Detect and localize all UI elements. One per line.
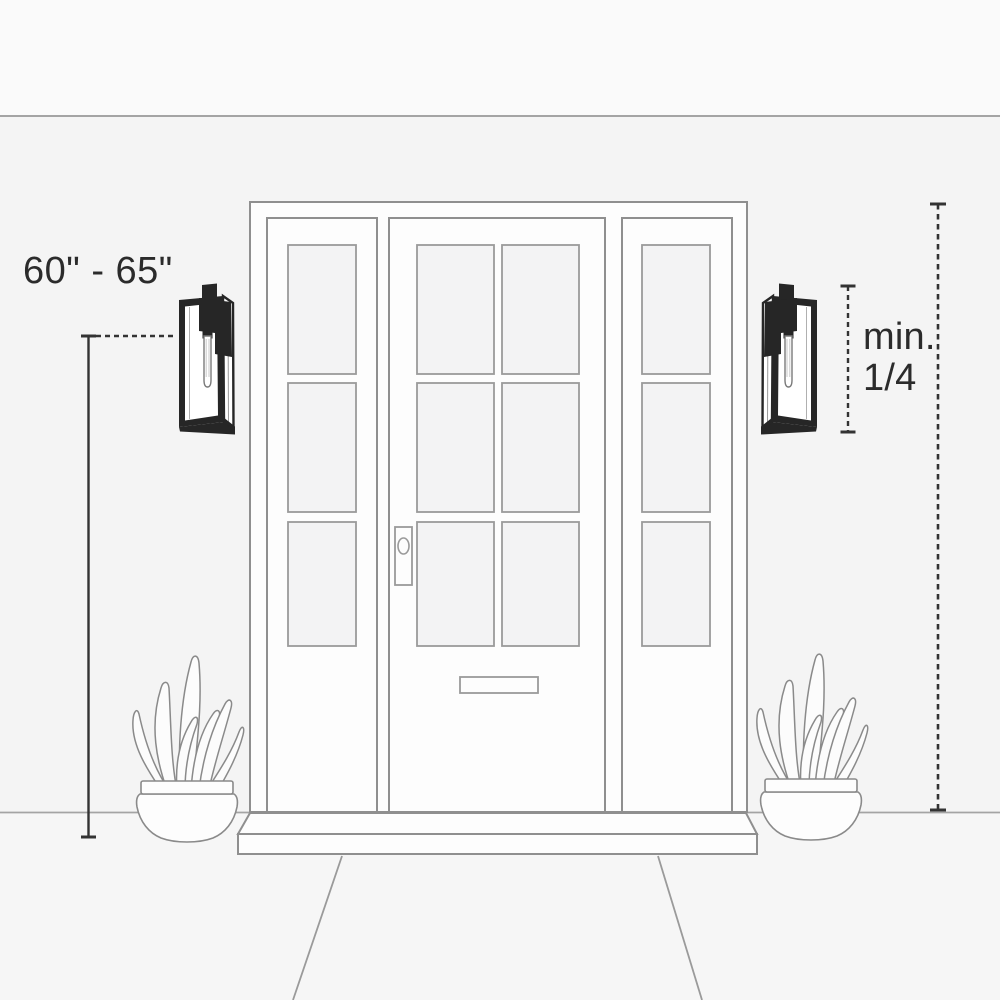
porch-step-front [238,834,757,854]
door-pane-middle-left [417,383,494,512]
left-sidelight-pane-middle [288,383,356,512]
door-pane-bottom-right [502,522,579,646]
left-sidelight-pane-top [288,245,356,374]
min-ratio-label-line2: 1/4 [863,358,936,399]
left-sidelight-pane-bottom [288,522,356,646]
right-sidelight-pane-bottom [642,522,710,646]
door-pane-top-left [417,245,494,374]
right-sidelight-pane-middle [642,383,710,512]
door-knob [398,538,409,554]
right-sidelight-pane-top [642,245,710,374]
min-ratio-label: min. 1/4 [863,317,936,399]
door-pane-bottom-left [417,522,494,646]
door-pane-top-right [502,245,579,374]
mail-slot [460,677,538,693]
diagram-canvas: 60" - 65" min. 1/4 [0,0,1000,1000]
porch-step-top [238,813,757,834]
door-height-reference-line [930,204,946,810]
mounting-height-label: 60" - 65" [23,251,173,292]
right-wall-sconce [761,284,817,435]
porch-step [238,813,757,854]
door-lock-plate [395,527,412,585]
left-potted-plant [133,656,244,842]
left-wall-sconce [179,284,235,435]
sconce-height-dimension-line [841,286,856,432]
scene-art [0,0,1000,1000]
right-potted-plant [757,654,868,840]
entry-door-assembly [250,202,747,812]
door-pane-middle-right [502,383,579,512]
min-ratio-label-line1: min. [863,317,936,358]
